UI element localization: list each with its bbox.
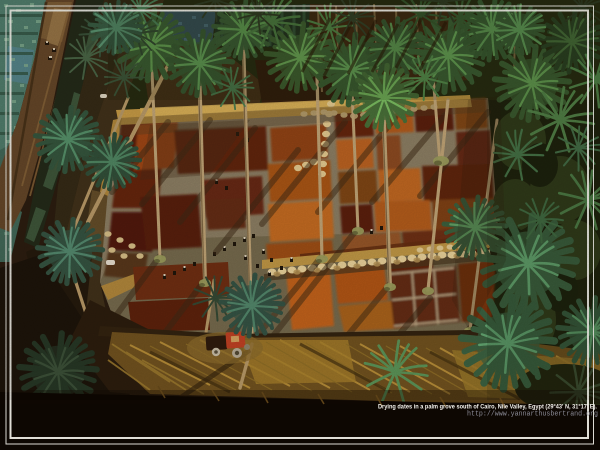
svg-text:http://www.yannarthusbertrand.: http://www.yannarthusbertrand.org	[467, 411, 598, 419]
svg-text:Drying dates in a palm grove s: Drying dates in a palm grove south of Ca…	[378, 403, 597, 411]
